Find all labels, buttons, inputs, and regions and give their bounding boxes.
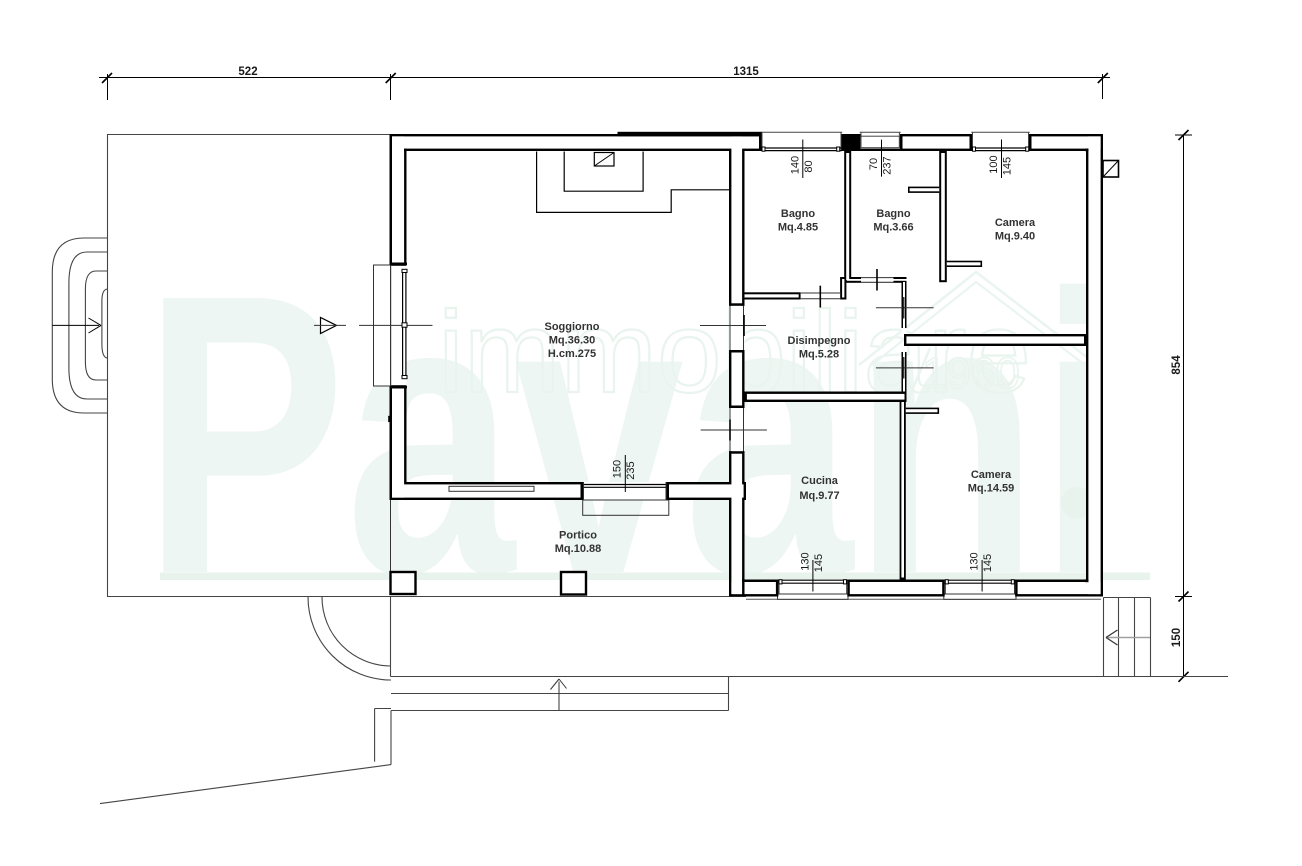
svg-text:100: 100 (988, 155, 1000, 173)
svg-text:Bagno: Bagno (876, 208, 911, 220)
svg-text:Cucina: Cucina (801, 475, 839, 487)
svg-text:Soggiorno: Soggiorno (545, 321, 600, 333)
svg-text:140: 140 (790, 156, 802, 174)
svg-text:Camera: Camera (995, 217, 1036, 229)
svg-text:H.cm.275: H.cm.275 (548, 348, 596, 360)
svg-text:Portico: Portico (559, 530, 597, 542)
svg-text:145: 145 (813, 554, 825, 572)
svg-text:80: 80 (803, 160, 815, 172)
svg-text:235: 235 (625, 461, 637, 479)
svg-text:Mq.10.88: Mq.10.88 (555, 543, 601, 555)
svg-text:854: 854 (1171, 355, 1183, 375)
svg-text:Mq.9.77: Mq.9.77 (799, 490, 839, 502)
svg-text:1315: 1315 (733, 66, 759, 78)
svg-text:Mq.4.85: Mq.4.85 (778, 222, 818, 234)
svg-text:1960: 1960 (922, 349, 1020, 398)
svg-text:130: 130 (800, 552, 812, 570)
svg-text:150: 150 (1171, 628, 1183, 647)
svg-text:Mq.5.28: Mq.5.28 (799, 349, 839, 361)
svg-text:Bagno: Bagno (781, 208, 816, 220)
svg-text:Camera: Camera (971, 469, 1012, 481)
svg-text:70: 70 (868, 158, 880, 170)
svg-text:237: 237 (882, 156, 894, 174)
svg-text:150: 150 (612, 460, 624, 478)
svg-text:522: 522 (238, 66, 257, 78)
svg-text:145: 145 (982, 554, 994, 572)
svg-text:Mq.9.40: Mq.9.40 (995, 231, 1035, 243)
svg-text:130: 130 (969, 552, 981, 570)
svg-text:Mq.36.30: Mq.36.30 (549, 335, 595, 347)
svg-text:Disimpegno: Disimpegno (788, 335, 851, 347)
svg-text:145: 145 (1002, 157, 1014, 175)
svg-text:Mq.3.66: Mq.3.66 (873, 222, 913, 234)
svg-text:Mq.14.59: Mq.14.59 (968, 483, 1014, 495)
